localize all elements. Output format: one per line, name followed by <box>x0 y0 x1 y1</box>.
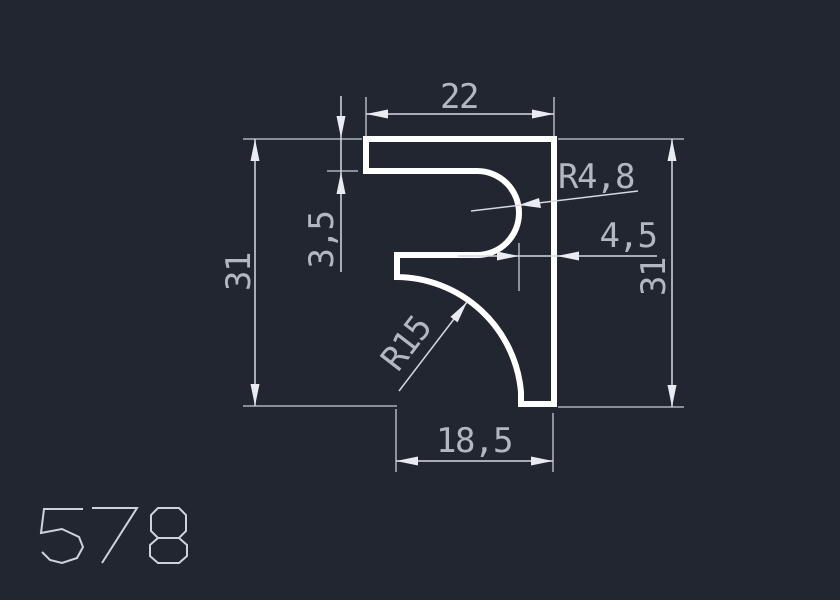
arrowhead-right-icon <box>497 252 519 261</box>
arrowhead-left-icon <box>396 457 418 466</box>
dim-top-width: 22 <box>366 77 554 136</box>
digit-5 <box>41 509 83 563</box>
cad-drawing-canvas: 22 3,5 31 31 R4,8 4,5 R15 <box>0 0 840 600</box>
cad-drawing: 22 3,5 31 31 R4,8 4,5 R15 <box>0 0 840 600</box>
dim-right-height: 31 <box>634 139 677 407</box>
dim-wall-thickness-label: 4,5 <box>600 216 657 256</box>
dim-bottom-width-label: 18,5 <box>436 421 512 461</box>
arrowhead-up-icon <box>251 139 260 161</box>
profile-number-value: 578 <box>115 597 117 599</box>
dim-flange-thickness: 3,5 <box>302 96 358 272</box>
profile-number: 578 <box>41 508 187 599</box>
arrowhead-leader-icon <box>519 198 541 208</box>
dim-bottom-width: 18,5 <box>396 409 553 472</box>
dim-left-height-label: 31 <box>219 253 259 291</box>
arrowhead-up-icon <box>337 172 346 194</box>
digit-7 <box>92 508 137 563</box>
dim-cove-radius-label: R15 <box>373 309 439 379</box>
arrowhead-down-icon <box>668 385 677 407</box>
arrowhead-down-icon <box>337 116 346 138</box>
digit-8 <box>150 508 187 563</box>
dim-flange-thickness-label: 3,5 <box>302 212 342 269</box>
arrowhead-right-icon <box>531 457 553 466</box>
arrowhead-left-icon <box>557 252 579 261</box>
dim-right-height-label: 31 <box>634 258 674 296</box>
arrowhead-up-icon <box>668 139 677 161</box>
dim-cove-radius: R15 <box>373 302 467 391</box>
arrowhead-down-icon <box>251 384 260 406</box>
dim-left-height: 31 <box>219 139 260 406</box>
dim-slot-radius-label: R4,8 <box>558 157 634 197</box>
arrowhead-right-icon <box>532 110 554 119</box>
dim-top-width-label: 22 <box>440 77 478 117</box>
arrowhead-left-icon <box>366 110 388 119</box>
